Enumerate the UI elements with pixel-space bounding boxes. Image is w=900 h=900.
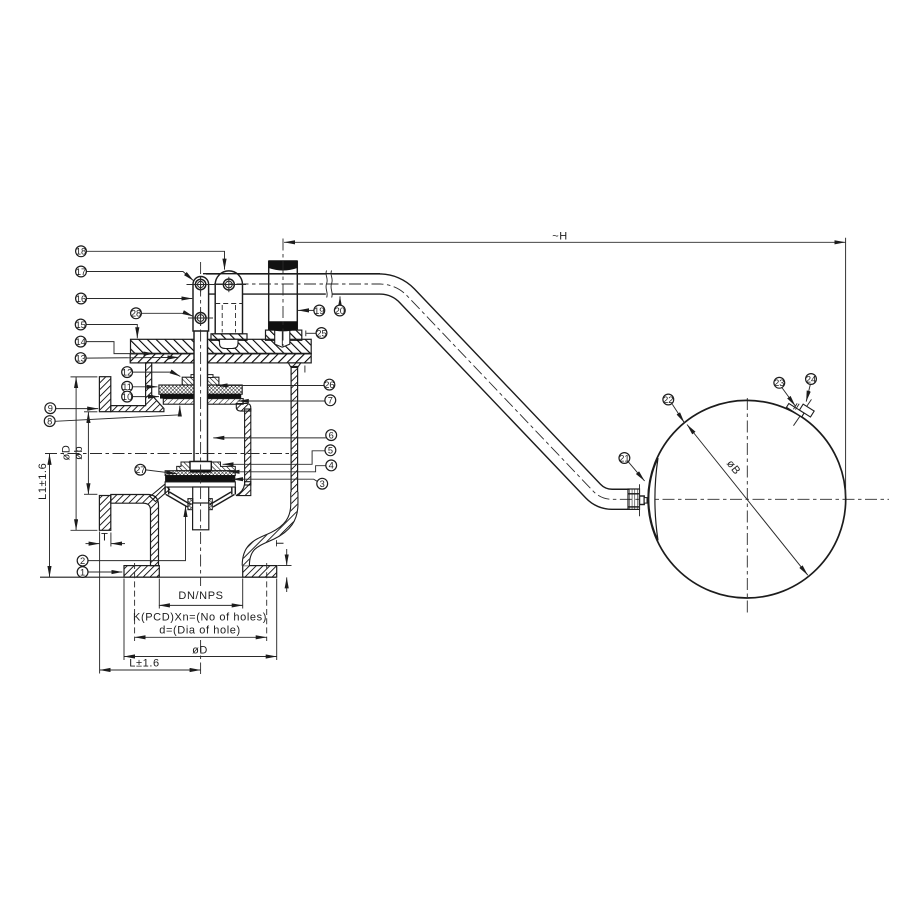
svg-text:13: 13 (76, 353, 86, 363)
svg-text:L±1.6: L±1.6 (129, 657, 159, 669)
svg-text:øD: øD (192, 645, 208, 657)
svg-text:6: 6 (329, 430, 334, 440)
svg-text:4: 4 (329, 461, 334, 471)
svg-text:øb: øb (73, 446, 85, 460)
svg-text:8: 8 (47, 416, 52, 426)
svg-text:26: 26 (324, 380, 334, 390)
svg-text:24: 24 (806, 374, 816, 384)
svg-text:~H: ~H (552, 231, 568, 243)
svg-text:øD: øD (61, 445, 73, 461)
svg-text:7: 7 (328, 396, 333, 406)
svg-text:9: 9 (48, 404, 53, 414)
svg-text:19: 19 (314, 306, 324, 316)
svg-text:28: 28 (131, 309, 141, 319)
svg-text:14: 14 (76, 337, 86, 347)
svg-text:16: 16 (76, 294, 86, 304)
svg-text:T: T (101, 532, 108, 544)
svg-text:18: 18 (76, 247, 86, 257)
svg-text:27: 27 (135, 465, 145, 475)
svg-text:2: 2 (80, 556, 85, 566)
svg-text:DN/NPS: DN/NPS (178, 590, 223, 602)
svg-text:25: 25 (316, 328, 326, 338)
svg-text:1: 1 (80, 567, 85, 577)
svg-text:22: 22 (663, 395, 673, 405)
svg-text:3: 3 (320, 479, 325, 489)
svg-text:5: 5 (328, 446, 333, 456)
svg-text:15: 15 (76, 320, 86, 330)
svg-text:d=(Dia of hole): d=(Dia of hole) (159, 625, 240, 637)
svg-text:20: 20 (335, 306, 345, 316)
svg-text:23: 23 (774, 378, 784, 388)
svg-text:L1±1.6: L1±1.6 (37, 463, 49, 500)
svg-text:21: 21 (619, 453, 629, 463)
svg-text:T: T (275, 539, 287, 546)
svg-text:10: 10 (122, 392, 132, 402)
svg-text:12: 12 (122, 367, 132, 377)
svg-text:17: 17 (76, 267, 86, 277)
svg-text:K(PCD)Xn=(No of holes): K(PCD)Xn=(No of holes) (133, 612, 267, 624)
